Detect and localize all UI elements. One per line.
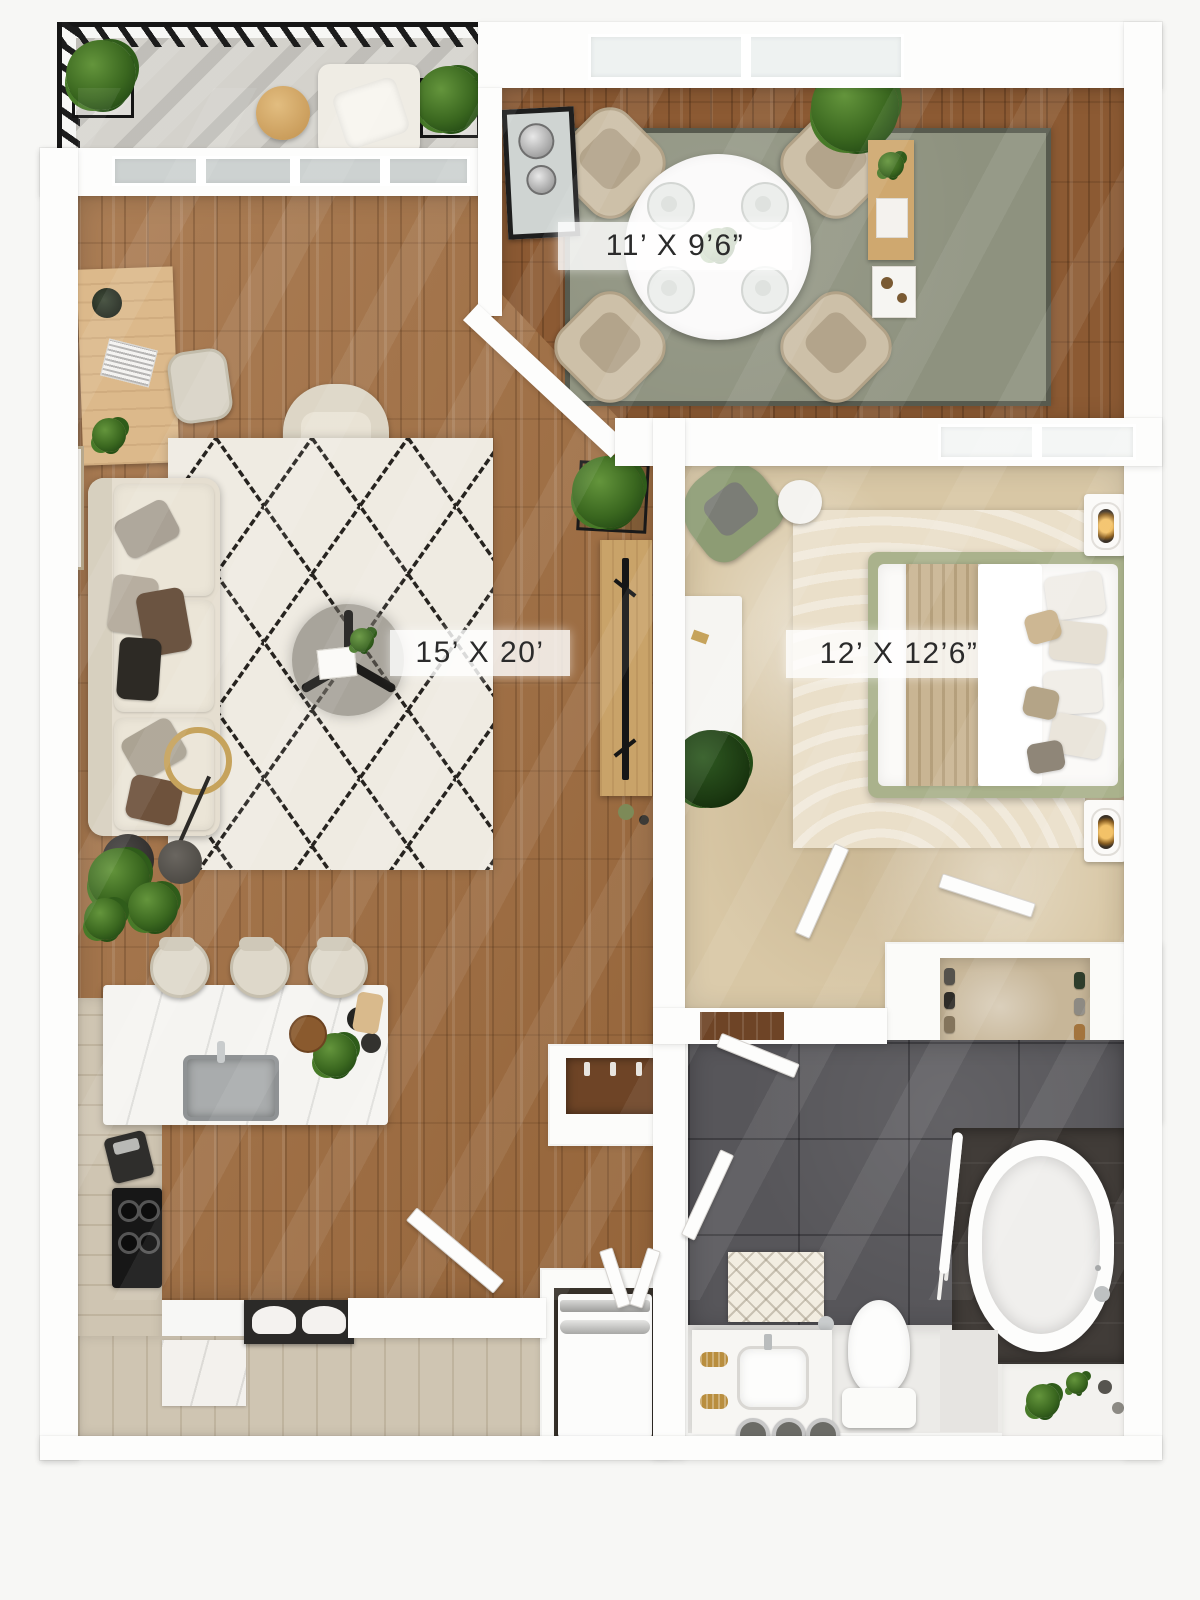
tub-side-panel xyxy=(940,1330,998,1432)
balcony-plant-left xyxy=(66,40,136,110)
coffee-table-book xyxy=(317,646,358,680)
washer-handle xyxy=(560,1320,650,1334)
entry-bench xyxy=(244,1300,354,1344)
island-tray xyxy=(289,1015,327,1053)
wall-sconce xyxy=(1091,808,1121,856)
bath-mat xyxy=(728,1252,824,1322)
balcony-railing-top xyxy=(57,22,485,47)
rolled-towel xyxy=(700,1394,728,1409)
shoes xyxy=(944,968,955,985)
cooktop xyxy=(112,1188,162,1288)
kitchen-counter-corner xyxy=(162,1340,246,1406)
coffee-table xyxy=(292,604,404,716)
nightstand xyxy=(1084,494,1126,556)
place-setting xyxy=(741,266,789,314)
bedroom-dimension-label: 12’ X 12’6” xyxy=(786,630,1012,678)
wall xyxy=(40,1436,1162,1460)
dining-dimension-text: 11’ X 9’6” xyxy=(558,222,792,270)
dining-room-window xyxy=(588,34,904,80)
dining-chair-seat xyxy=(801,307,872,378)
office-chair xyxy=(165,346,234,426)
sofa-backrest xyxy=(88,478,112,836)
living-dimension-text: 15’ X 20’ xyxy=(390,630,570,676)
shelf-plant xyxy=(1026,1384,1060,1418)
burner xyxy=(138,1200,160,1222)
bedroom-armchair xyxy=(680,462,780,558)
washer-dryer xyxy=(558,1294,652,1438)
burner xyxy=(118,1232,140,1254)
balcony-side-table xyxy=(256,86,310,140)
console-vases xyxy=(618,804,634,820)
accent-pillow xyxy=(1026,739,1067,775)
shoes xyxy=(944,992,955,1009)
bar-cart-tray xyxy=(526,164,558,196)
toilet-tank xyxy=(842,1388,916,1428)
bar-stool xyxy=(308,938,368,998)
vanity-sink xyxy=(737,1346,809,1410)
bar-cart xyxy=(502,106,581,240)
balcony-plant-right xyxy=(416,66,482,132)
shelf-item xyxy=(1098,1380,1112,1394)
bedroom-side-table xyxy=(778,480,822,524)
kitchen-counter-bottom xyxy=(78,1336,556,1436)
kitchen-sink xyxy=(183,1055,279,1121)
wall xyxy=(653,418,685,1458)
console-decor xyxy=(876,198,908,238)
bathroom-vanity xyxy=(692,1330,832,1434)
side-table xyxy=(158,840,202,884)
burner xyxy=(118,1200,140,1222)
wall xyxy=(478,88,502,316)
bedroom-doorway-threshold xyxy=(700,1012,784,1040)
tub-faucet xyxy=(1094,1286,1110,1302)
bar-cart-tray xyxy=(517,122,555,160)
wall xyxy=(348,1298,546,1338)
bedroom-dimension-text: 12’ X 12’6” xyxy=(786,630,1012,678)
desk-plant xyxy=(92,418,126,452)
living-dimension-label: 15’ X 20’ xyxy=(390,630,570,676)
console-tray xyxy=(872,266,916,318)
dining-dimension-label: 11’ X 9’6” xyxy=(558,222,792,270)
arc-floor-lamp xyxy=(164,727,232,795)
burner xyxy=(138,1232,160,1254)
rolled-towel xyxy=(700,1352,728,1367)
shoes xyxy=(1074,1024,1085,1041)
throw-pillow xyxy=(116,637,162,702)
floor-plant xyxy=(128,882,178,932)
place-setting xyxy=(647,266,695,314)
dining-chair-seat xyxy=(575,123,646,194)
bathtub xyxy=(968,1140,1114,1352)
bedroom-window xyxy=(938,424,1136,460)
wall-sconce xyxy=(1091,502,1121,550)
island-bowl xyxy=(361,1033,381,1053)
shoes xyxy=(1074,972,1085,989)
cutting-board xyxy=(352,991,385,1035)
bar-stool xyxy=(150,938,210,998)
bar-stool xyxy=(230,938,290,998)
nightstand xyxy=(1084,800,1126,862)
console-plant xyxy=(878,152,904,178)
apartment-floor-plan: 11’ X 9’6” 15’ X 20’ 12’ X 12’6” xyxy=(0,0,1200,1600)
wall xyxy=(1124,22,1162,1458)
desk-lamp xyxy=(92,288,122,318)
bathtub-basin xyxy=(982,1156,1100,1334)
coffee-table-plant xyxy=(350,628,374,652)
toilet xyxy=(848,1300,910,1394)
shelf-plant xyxy=(1066,1372,1088,1394)
shelf-item xyxy=(1112,1402,1124,1414)
wall xyxy=(40,148,78,1460)
dining-chair-seat xyxy=(575,307,646,378)
shoes xyxy=(1074,998,1085,1015)
vanity-faucet xyxy=(764,1334,772,1350)
media-plant xyxy=(572,456,644,528)
coat-closet-interior xyxy=(566,1058,662,1114)
kitchen-island xyxy=(103,985,388,1125)
floor-plant xyxy=(84,898,126,940)
living-room-window xyxy=(112,156,470,186)
shoes xyxy=(944,1016,955,1033)
